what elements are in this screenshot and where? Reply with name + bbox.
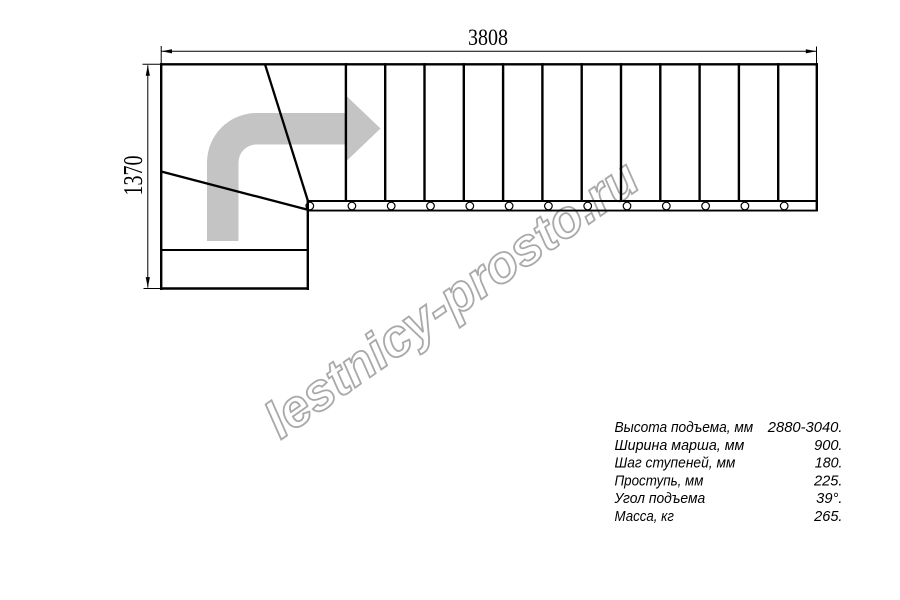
svg-text:Шаг ступеней, мм: Шаг ступеней, мм [615, 456, 736, 472]
svg-text:Ширина марша, мм: Ширина марша, мм [615, 438, 745, 454]
svg-text:265.: 265. [813, 509, 842, 525]
svg-text:180.: 180. [815, 456, 843, 472]
svg-text:39°.: 39°. [816, 491, 842, 507]
svg-text:Высота подъема, мм: Высота подъема, мм [615, 420, 754, 436]
svg-text:225.: 225. [813, 473, 843, 489]
svg-text:2880-3040.: 2880-3040. [767, 420, 843, 436]
svg-text:1370: 1370 [118, 156, 148, 196]
svg-text:3808: 3808 [468, 25, 508, 51]
svg-text:Масса, кг: Масса, кг [615, 509, 674, 525]
svg-text:900.: 900. [814, 438, 842, 454]
svg-text:Проступь, мм: Проступь, мм [615, 473, 704, 489]
svg-text:Угол подъема: Угол подъема [614, 491, 706, 507]
